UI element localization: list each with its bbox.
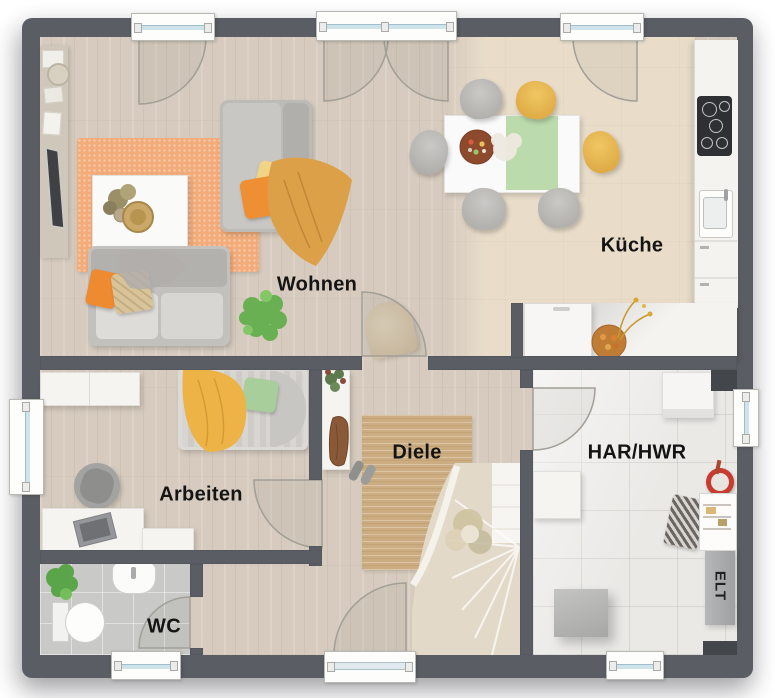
table-runner: [506, 116, 558, 190]
window-glass: [136, 25, 210, 30]
window-handle: [446, 22, 454, 32]
chair-seat: [77, 465, 118, 507]
window-handle: [742, 434, 750, 444]
window-handle: [319, 22, 327, 32]
kitchen-counter-right: [694, 40, 738, 308]
burner: [701, 137, 713, 149]
cooktop: [697, 96, 732, 156]
window-glass: [116, 664, 176, 669]
pillow-orange: [239, 175, 281, 220]
burner: [702, 102, 717, 117]
window-har: [733, 389, 759, 447]
dining-table: [444, 115, 580, 193]
room-label-arbeiten: Arbeiten: [159, 484, 243, 507]
books: [43, 86, 64, 104]
room-label-wc: WC: [147, 616, 181, 639]
window-handle: [22, 402, 30, 412]
washing-machine: [662, 372, 714, 418]
window-handle: [742, 392, 750, 402]
window-handle: [633, 23, 641, 33]
wall-arbeiten-diele: [309, 370, 322, 480]
floor-plan: Wohnen Küche Arbeiten Diele WC HAR/HWR E…: [0, 0, 775, 698]
shelf-rung: [703, 528, 731, 530]
window-handle: [563, 23, 571, 33]
coat-rack-panel: [322, 370, 350, 470]
entrance-door: [324, 651, 416, 683]
cabinet-seam: [695, 240, 737, 242]
cabinet-handle: [700, 246, 709, 249]
door-hinge: [405, 662, 413, 672]
wall-har-main: [520, 450, 533, 655]
kitchen-counter-bottom: [592, 303, 737, 360]
window-handle: [653, 661, 661, 671]
room-label-har-hwr: HAR/HWR: [588, 442, 687, 465]
cabinet-handle: [700, 283, 709, 286]
window-wc: [111, 651, 181, 680]
window-har-bottom: [606, 651, 664, 680]
wall-wc-stub: [190, 648, 203, 655]
faucet: [131, 567, 136, 579]
door-leaf: [331, 662, 409, 670]
hallway-rug: [362, 415, 472, 570]
window-handle: [114, 661, 122, 671]
desk: [42, 508, 144, 552]
door-hinge: [327, 662, 335, 672]
wc-sink: [112, 562, 156, 594]
chest-handle: [553, 307, 570, 311]
cabinet-seam: [695, 277, 737, 279]
har-niche-top: [711, 370, 737, 391]
window-glass: [611, 664, 659, 669]
sofa-cushion: [161, 293, 223, 339]
room-label-diele: Diele: [392, 442, 441, 465]
window-handle: [22, 482, 30, 492]
room-label-kueche: Küche: [601, 235, 664, 258]
window-handle: [609, 661, 617, 671]
wall-kitchen-stub: [511, 303, 523, 358]
window-handle: [134, 23, 142, 33]
machine-panel: [663, 409, 713, 417]
window-handle: [204, 23, 212, 33]
cabinet-seam: [89, 373, 90, 405]
room-label-elt: ELT: [712, 571, 729, 601]
shelf-item: [706, 507, 716, 514]
wall-living-hall-left: [40, 356, 362, 370]
wall-har-top-stub: [520, 370, 533, 388]
burner: [716, 137, 728, 149]
window-handle: [170, 661, 178, 671]
ladder-shelf: [699, 493, 737, 551]
window-arbeiten: [9, 399, 44, 495]
decor-plate: [47, 63, 70, 86]
room-label-wohnen: Wohnen: [277, 274, 357, 297]
pillow-green: [241, 377, 279, 413]
office-cabinet: [40, 372, 140, 406]
pillow-plaid: [110, 270, 153, 315]
wall-arbeiten-bottom: [40, 550, 322, 564]
window-french-doors: [316, 11, 457, 41]
har-niche-bottom: [703, 641, 737, 655]
storage-box: [533, 471, 581, 519]
faucet: [724, 189, 728, 201]
shelf-item: [718, 519, 727, 526]
books: [42, 111, 62, 135]
bucket-inner: [711, 473, 729, 491]
burner: [719, 101, 730, 112]
wall-living-hall-right: [428, 356, 737, 370]
shelf-rung: [703, 516, 731, 518]
window-handle: [381, 22, 389, 32]
window-glass: [25, 404, 30, 490]
appliance-box: [554, 589, 608, 637]
wall-wc-diele: [190, 564, 203, 597]
shelf-rung: [703, 504, 731, 506]
desk-return: [142, 528, 194, 552]
office-chair: [74, 463, 120, 509]
toilet-bowl: [65, 602, 105, 643]
chest-appliance: [524, 303, 592, 359]
window-glass: [565, 25, 639, 30]
bucket: [706, 468, 734, 496]
sink-basin: [703, 197, 727, 229]
daybed: [178, 368, 308, 450]
window-kitchen-door: [560, 13, 644, 41]
kitchen-sink: [699, 190, 733, 238]
window-terrace-door: [131, 13, 215, 41]
burner: [709, 119, 723, 133]
coffee-table: [92, 175, 188, 247]
